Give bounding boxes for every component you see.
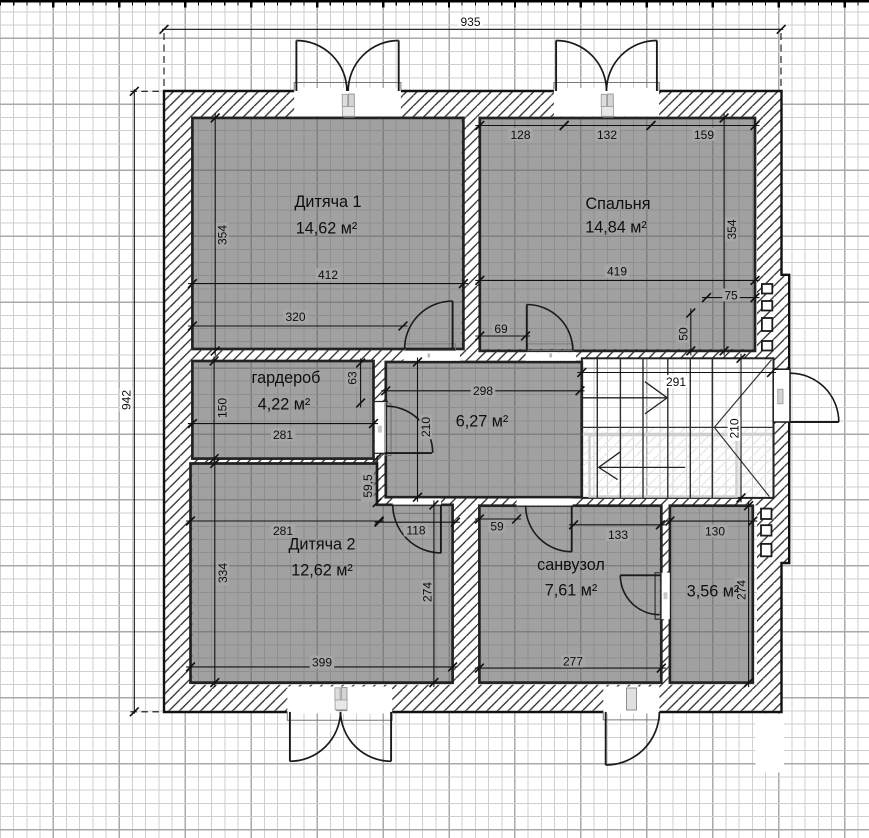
svg-text:санвузол: санвузол — [537, 556, 605, 574]
svg-text:150: 150 — [215, 398, 229, 418]
svg-text:354: 354 — [216, 225, 230, 245]
svg-text:59: 59 — [490, 519, 504, 533]
svg-text:354: 354 — [725, 219, 739, 239]
svg-text:3,56 м²: 3,56 м² — [687, 583, 740, 601]
svg-text:59,5: 59,5 — [361, 474, 375, 498]
svg-text:50: 50 — [676, 327, 690, 341]
svg-text:277: 277 — [563, 655, 583, 669]
svg-text:281: 281 — [273, 428, 293, 442]
svg-text:7,61 м²: 7,61 м² — [545, 582, 598, 600]
svg-text:210: 210 — [727, 418, 741, 438]
svg-text:159: 159 — [694, 128, 714, 142]
svg-text:935: 935 — [460, 15, 480, 29]
svg-text:63: 63 — [345, 371, 359, 385]
svg-text:412: 412 — [318, 268, 338, 282]
svg-text:Дитяча 1: Дитяча 1 — [294, 193, 361, 211]
svg-text:128: 128 — [510, 128, 530, 142]
svg-text:12,62 м²: 12,62 м² — [291, 562, 353, 580]
svg-text:419: 419 — [607, 264, 627, 278]
svg-text:130: 130 — [705, 524, 725, 538]
svg-text:334: 334 — [216, 563, 230, 583]
svg-text:274: 274 — [420, 582, 434, 602]
svg-text:6,27 м²: 6,27 м² — [456, 413, 509, 431]
svg-text:291: 291 — [666, 375, 686, 389]
svg-text:320: 320 — [285, 310, 305, 324]
svg-text:133: 133 — [608, 528, 628, 542]
svg-text:14,62 м²: 14,62 м² — [296, 220, 358, 238]
svg-text:132: 132 — [597, 128, 617, 142]
svg-text:Спальня: Спальня — [585, 195, 650, 213]
svg-text:298: 298 — [473, 384, 493, 398]
svg-text:гардероб: гардероб — [252, 369, 321, 387]
svg-text:210: 210 — [419, 417, 433, 437]
svg-text:399: 399 — [312, 655, 332, 669]
svg-text:4,22 м²: 4,22 м² — [258, 396, 311, 414]
svg-text:Дитяча 2: Дитяча 2 — [288, 536, 355, 554]
svg-text:14,84 м²: 14,84 м² — [585, 219, 647, 237]
svg-text:69: 69 — [494, 322, 508, 336]
svg-text:118: 118 — [406, 523, 425, 537]
svg-text:942: 942 — [119, 390, 133, 410]
svg-text:75: 75 — [724, 288, 738, 302]
